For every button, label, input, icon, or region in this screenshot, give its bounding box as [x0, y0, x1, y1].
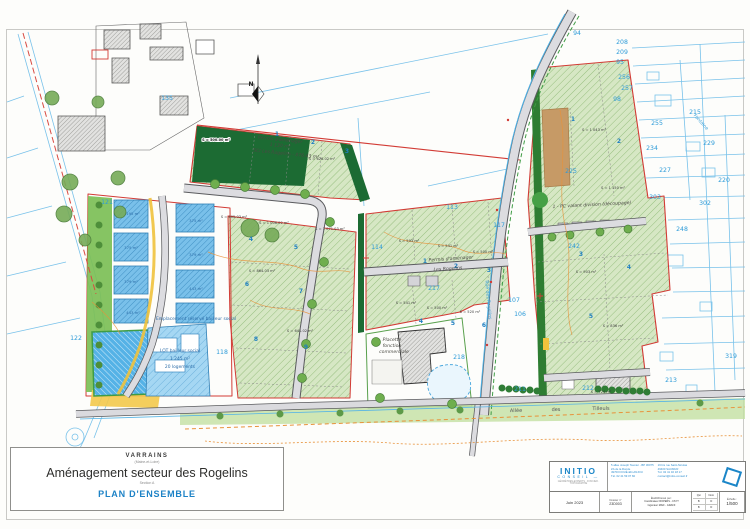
map-label: 117 — [493, 222, 505, 229]
map-label: Tilleuls — [591, 406, 610, 412]
map-label: 211 — [514, 386, 526, 393]
map-label: 242 — [568, 243, 580, 250]
map-label: N — [248, 81, 253, 88]
map-label: 443 m² — [126, 310, 140, 315]
map-label: 1 — [423, 258, 427, 265]
north-arrow-icon — [252, 54, 264, 104]
map-label: S = 500 m² — [473, 250, 494, 254]
map-label: 7 — [299, 288, 303, 295]
map-label: 5 — [589, 313, 593, 320]
map-label: Placette — [383, 337, 402, 343]
map-label: 3 — [579, 251, 583, 258]
map-label: Allée — [510, 407, 522, 414]
map-label: S = 641.02 m² — [287, 329, 314, 333]
map-label: 225 — [565, 168, 577, 175]
map-label: 5 — [294, 244, 298, 251]
map-label: 114 — [371, 244, 383, 251]
map-label: 220 — [718, 177, 730, 184]
scanned-plan-sheet: 1351211221181131141171071062172182422259… — [0, 0, 750, 529]
map-label: S = 903 m² — [576, 270, 597, 274]
map-label: 122 — [70, 335, 82, 342]
scale-cell: Échelle : 1/500 — [720, 492, 745, 512]
map-label: 9 — [304, 344, 308, 351]
map-label: 217 — [428, 285, 440, 292]
scale-value: 1/500 — [726, 501, 737, 506]
map-label: S = 1 043 m² — [582, 128, 607, 132]
map-label: 248 — [676, 226, 688, 233]
map-label: commerciale — [379, 349, 409, 355]
map-label: 135 — [161, 95, 173, 102]
map-label: S = 724 m² — [591, 390, 612, 394]
map-label: Emplacement réservé bailleur social — [156, 315, 236, 322]
firm-block: INITIO CONSEIL — GÉOMÈTRES-EXPERTS · FON… — [549, 461, 746, 513]
map-label: 4 — [627, 264, 631, 271]
map-label: 4 — [419, 318, 423, 325]
map-label: 213 — [665, 377, 677, 384]
firm-block-top: INITIO CONSEIL — GÉOMÈTRES-EXPERTS · FON… — [550, 462, 745, 492]
plan-subtitle: Section A — [11, 481, 283, 485]
map-label: 319 — [725, 353, 737, 360]
firm-logo: INITIO CONSEIL — GÉOMÈTRES-EXPERTS · FON… — [550, 462, 608, 491]
map-label: 256 — [618, 74, 630, 81]
qui-nom-table: Qui Nom B D B D — [692, 492, 720, 512]
map-label: 106 — [514, 311, 526, 318]
etabli-line: Ingénieur MAIF - GRAFF — [648, 504, 676, 507]
map-label: S = 836 m² — [603, 324, 624, 328]
map-label: S = 593 m² — [399, 239, 420, 243]
map-label: 8 — [254, 336, 258, 343]
map-label: 218 — [453, 354, 465, 361]
map-label: S = 864.03 m² — [249, 269, 276, 273]
map-label: 113 — [446, 204, 458, 211]
map-label: 95 — [616, 59, 624, 66]
map-label: 3 — [487, 267, 491, 274]
map-label: S = 520 m² — [460, 310, 481, 314]
date-cell: Juin 2023 — [550, 492, 600, 512]
firm-addresses: 5 allée Joseph Taunier - BP 30075 ZA de … — [608, 462, 719, 491]
commune-subtitle: (Maine-et-Loire) — [11, 460, 283, 464]
map-label: 195 m² — [126, 211, 140, 216]
firm-address-1: 5 allée Joseph Taunier - BP 30075 ZA de … — [611, 464, 654, 489]
map-label: S = 1 150 m² — [601, 186, 626, 190]
map-label: 227 — [659, 167, 671, 174]
map-label: 303 — [649, 194, 661, 201]
map-label: 208 — [616, 39, 628, 46]
map-label: 1 — [571, 116, 575, 123]
map-label: 20 logements — [165, 364, 196, 370]
map-label: 375 m² — [124, 245, 138, 250]
diamond-icon — [722, 466, 742, 486]
firm-address-2: 16 bis rue Saint-Nicolas 49400 SAUMUR Té… — [658, 464, 688, 489]
map-label: 6 — [245, 281, 249, 288]
map-label: S = 1 071.03 m² — [315, 227, 345, 231]
map-label: 118 — [216, 349, 228, 356]
etabli-cell: Établi/Dressé par : Coordinateur ROPERS … — [632, 492, 692, 512]
map-label: des — [552, 407, 561, 413]
map-label: 375 m² — [189, 218, 203, 223]
map-label: 5 — [451, 320, 455, 327]
map-label: S = 1 006.02 m² — [259, 221, 289, 225]
map-label: fonction — [383, 343, 402, 349]
map-label: 255 — [651, 120, 663, 127]
nom-value: D — [706, 505, 719, 511]
map-label: 229 — [703, 140, 715, 147]
commune-name: VARRAINS — [11, 453, 283, 459]
map-label: 4 — [249, 236, 253, 243]
map-label: 1 245 m² — [170, 356, 190, 362]
map-label: LOT bailleur social — [160, 348, 200, 354]
document-type: PLAN D'ENSEMBLE — [11, 489, 283, 499]
map-label: S = 605.03 m² — [221, 215, 248, 219]
qui-value: B — [693, 505, 706, 511]
firm-logo-tagline: GÉOMÈTRES-EXPERTS · FONCIER · TOPOGRAPHI… — [550, 481, 607, 486]
firm-diamond-logo — [719, 462, 745, 491]
map-label: 2 — [311, 139, 315, 146]
map-label: 443 m² — [189, 286, 203, 291]
map-label: S = 500 m² — [427, 306, 448, 310]
map-label: 234 — [646, 145, 658, 152]
firm-block-bottom: Juin 2023 Dossier n° 23D003 Établi/Dress… — [550, 492, 745, 512]
title-block: VARRAINS (Maine-et-Loire) Aménagement se… — [10, 447, 284, 511]
map-label: S = 541 m² — [396, 301, 417, 305]
plan-title: Aménagement secteur des Rogelins — [11, 466, 283, 480]
map-label: 209 — [616, 49, 628, 56]
map-label: 98 — [613, 96, 621, 103]
map-label: 107 — [508, 297, 520, 304]
map-label: 3 — [345, 148, 349, 155]
map-label: 379 m² — [124, 279, 138, 284]
map-label: 6 — [482, 322, 486, 329]
map-label: S = 500.00 m² — [202, 138, 230, 142]
map-label: 379 m² — [189, 252, 203, 257]
map-label: 121 — [101, 199, 113, 206]
map-label: 257 — [621, 85, 633, 92]
dossier-cell: Dossier n° 23D003 — [600, 492, 632, 512]
map-label: 2 — [617, 138, 621, 145]
address-line: Tél. 02 41 59 07 82 — [611, 475, 654, 479]
map-label: 94 — [573, 30, 581, 37]
map-label: S = 541 m² — [438, 244, 459, 248]
address-line: contact@initio-conseil.fr — [658, 475, 688, 479]
dossier-number: 23D003 — [609, 502, 622, 506]
map-label: 302 — [699, 200, 711, 207]
